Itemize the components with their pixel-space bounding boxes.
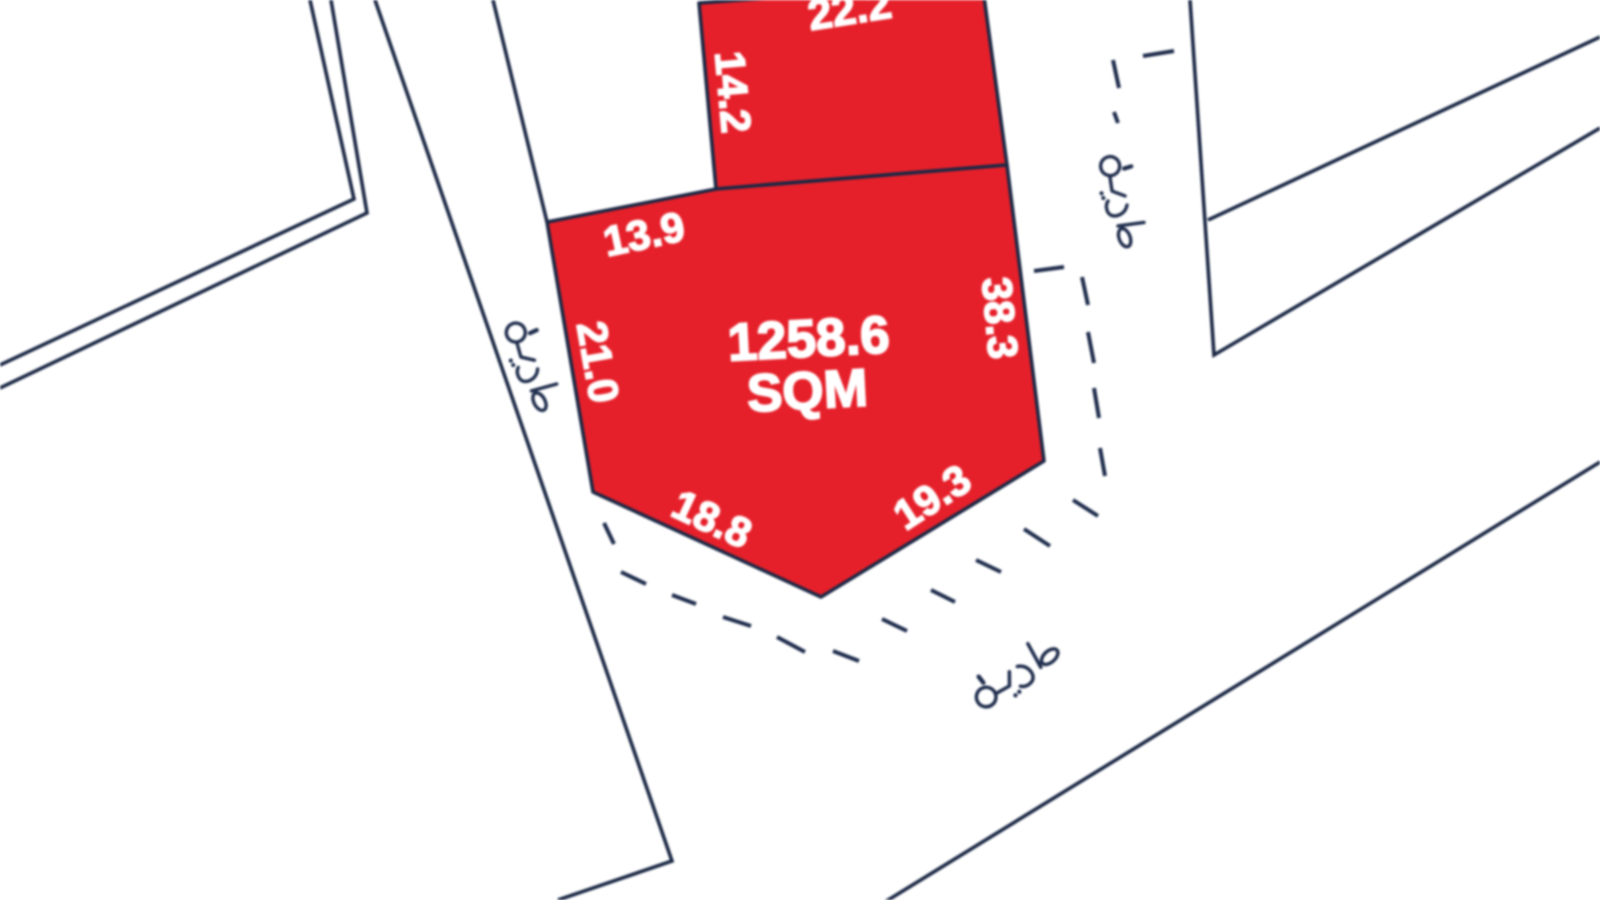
svg-text:14.2: 14.2 <box>706 49 760 135</box>
svg-text:SQM: SQM <box>746 359 870 424</box>
svg-text:38.3: 38.3 <box>973 275 1027 361</box>
